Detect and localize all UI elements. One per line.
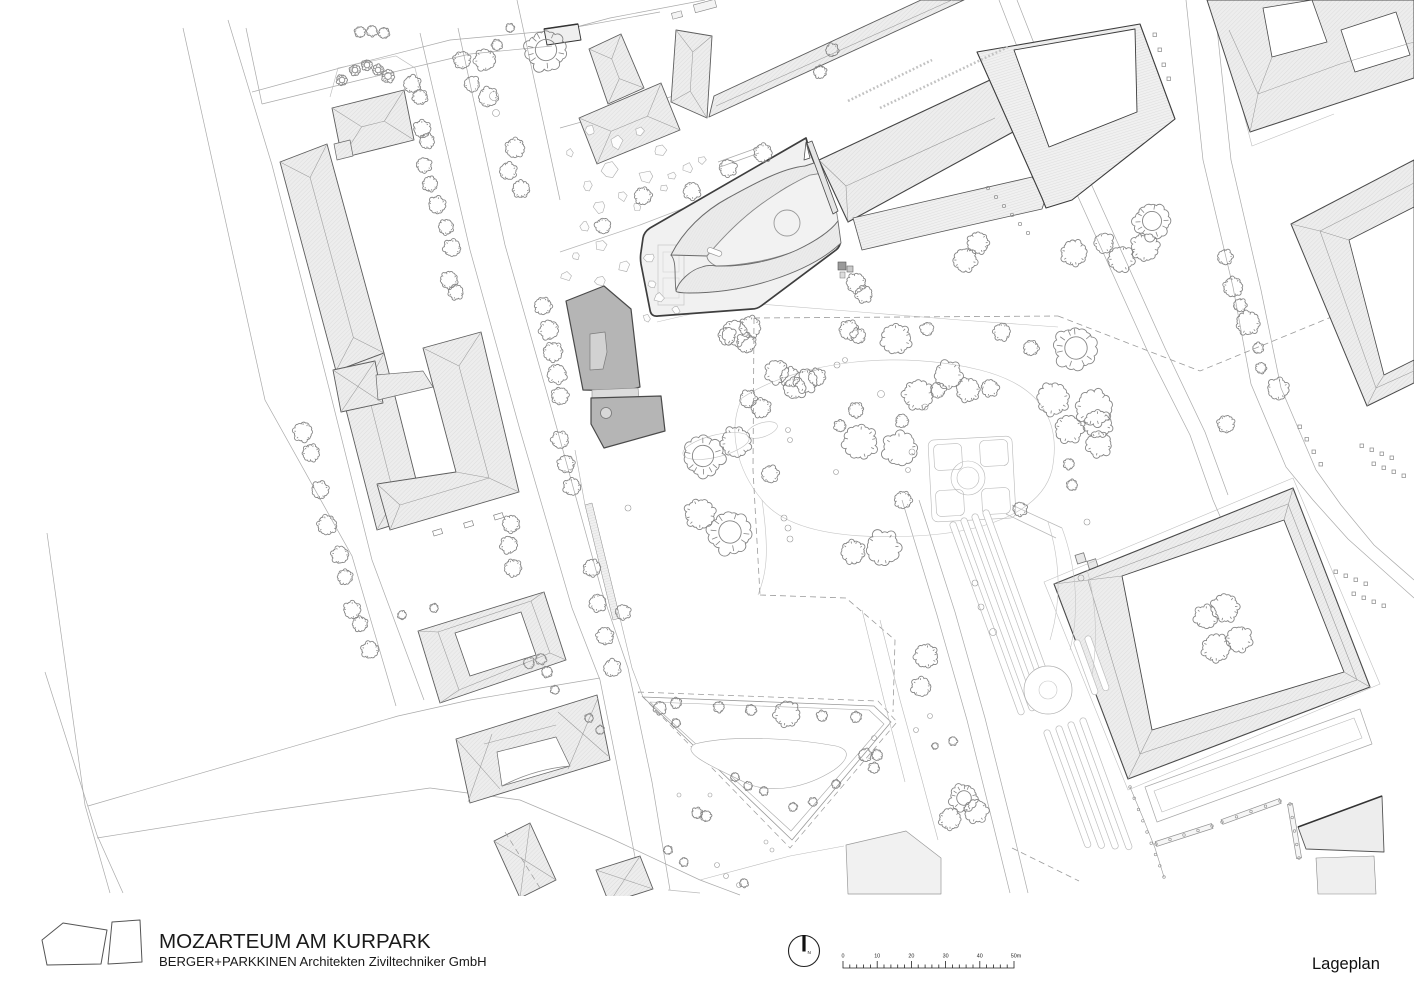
svg-text:BERGER+PARKKINEN Architekten Z: BERGER+PARKKINEN Architekten Ziviltechni… [159, 954, 487, 969]
svg-text:10: 10 [874, 954, 880, 960]
svg-text:20: 20 [908, 954, 914, 960]
svg-text:40: 40 [977, 954, 983, 960]
svg-text:0: 0 [842, 954, 845, 960]
svg-text:N: N [808, 950, 811, 955]
svg-text:50m: 50m [1011, 954, 1022, 960]
svg-text:30: 30 [943, 954, 949, 960]
svg-text:Lageplan: Lageplan [1312, 955, 1380, 973]
svg-text:MOZARTEUM AM KURPARK: MOZARTEUM AM KURPARK [159, 930, 431, 953]
